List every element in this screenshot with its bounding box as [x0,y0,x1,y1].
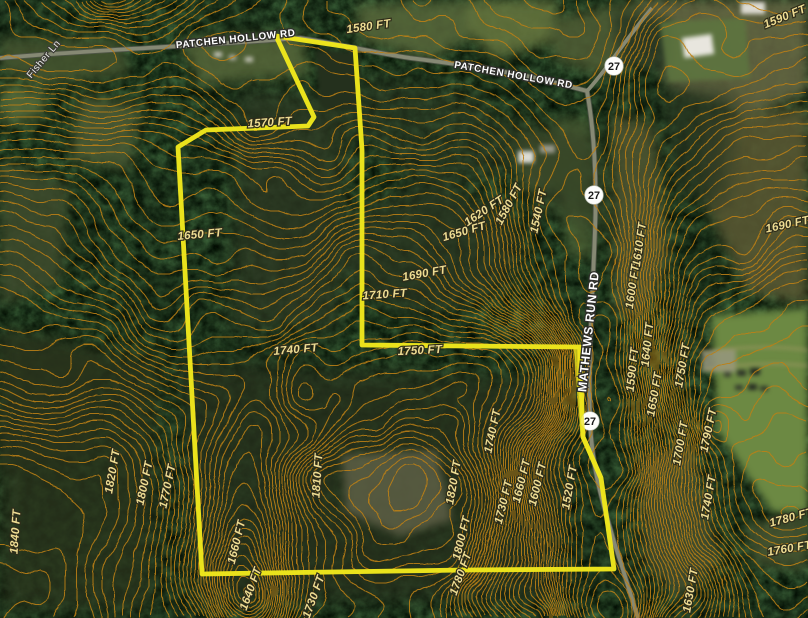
svg-text:1750 FT: 1750 FT [397,343,443,358]
svg-text:27: 27 [584,416,596,428]
svg-text:27: 27 [608,61,620,73]
svg-text:27: 27 [588,190,600,202]
